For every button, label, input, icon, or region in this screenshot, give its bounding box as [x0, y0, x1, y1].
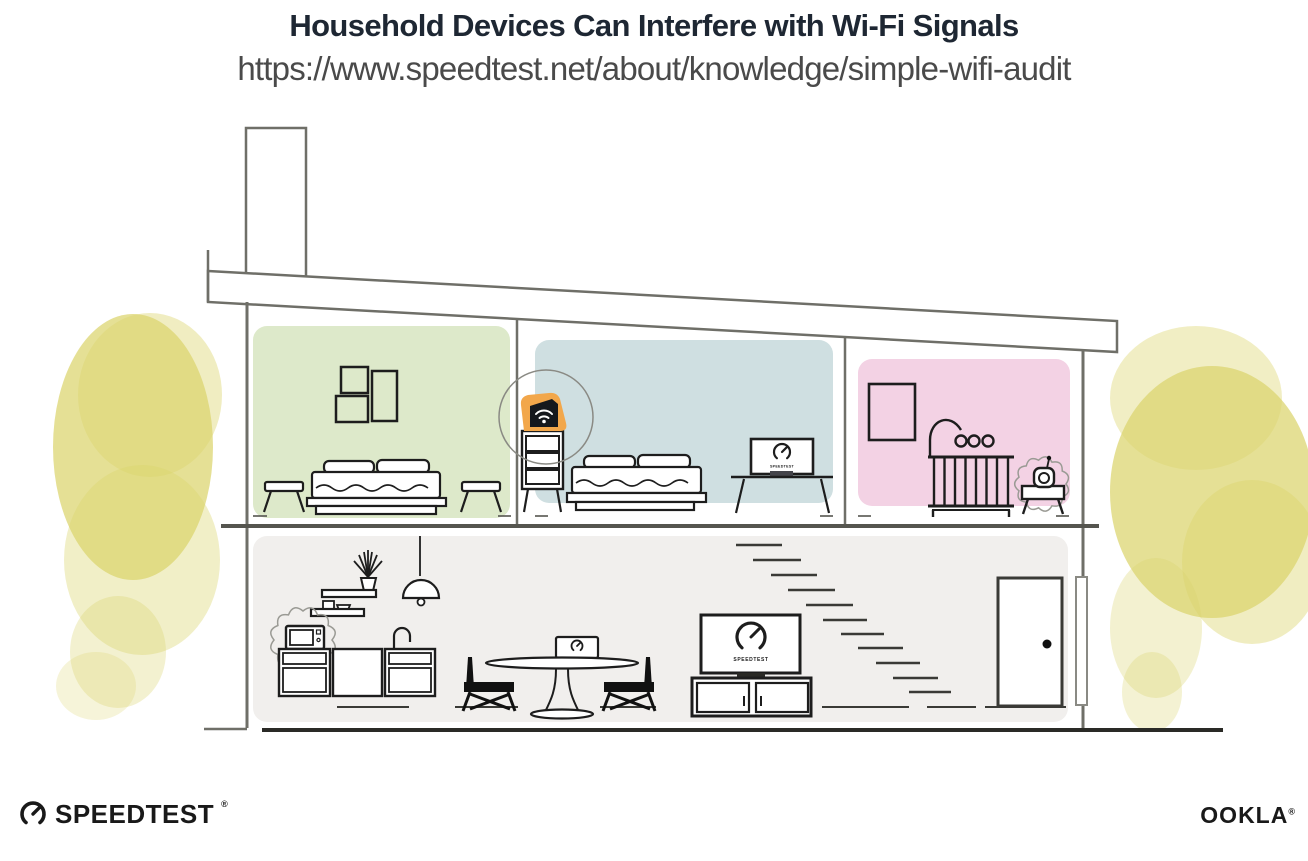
speedtest-wordmark: SPEEDTEST	[55, 799, 214, 829]
bed	[307, 460, 446, 514]
downspout	[1076, 577, 1087, 705]
house-cross-section-illustration: SPEEDTEST	[0, 0, 1308, 861]
nightstand	[1022, 486, 1064, 514]
tv-screen: SPEEDTEST	[701, 615, 800, 677]
tv-area: SPEEDTEST	[692, 615, 811, 716]
ookla-trademark: ®	[1288, 806, 1296, 816]
microwave-oven	[286, 626, 324, 649]
speedtest-logo: SPEEDTEST®	[18, 799, 228, 829]
screen-brand-label: SPEEDTEST	[770, 465, 795, 469]
door-knob	[1043, 640, 1052, 649]
ookla-wordmark: OOKLA	[1200, 802, 1288, 828]
speedtest-trademark: ®	[221, 799, 228, 809]
speedtest-gauge-icon	[18, 799, 48, 829]
tv-console	[692, 678, 811, 716]
chimney	[246, 128, 306, 286]
front-door	[998, 578, 1062, 706]
kitchen-cabinets	[279, 649, 435, 696]
tree-foliage-left	[53, 313, 222, 720]
house-structure	[208, 128, 1117, 352]
tree-foliage-right	[1110, 326, 1308, 732]
screen-brand-label: SPEEDTEST	[733, 657, 768, 663]
ookla-logo: OOKLA®	[1200, 801, 1296, 829]
